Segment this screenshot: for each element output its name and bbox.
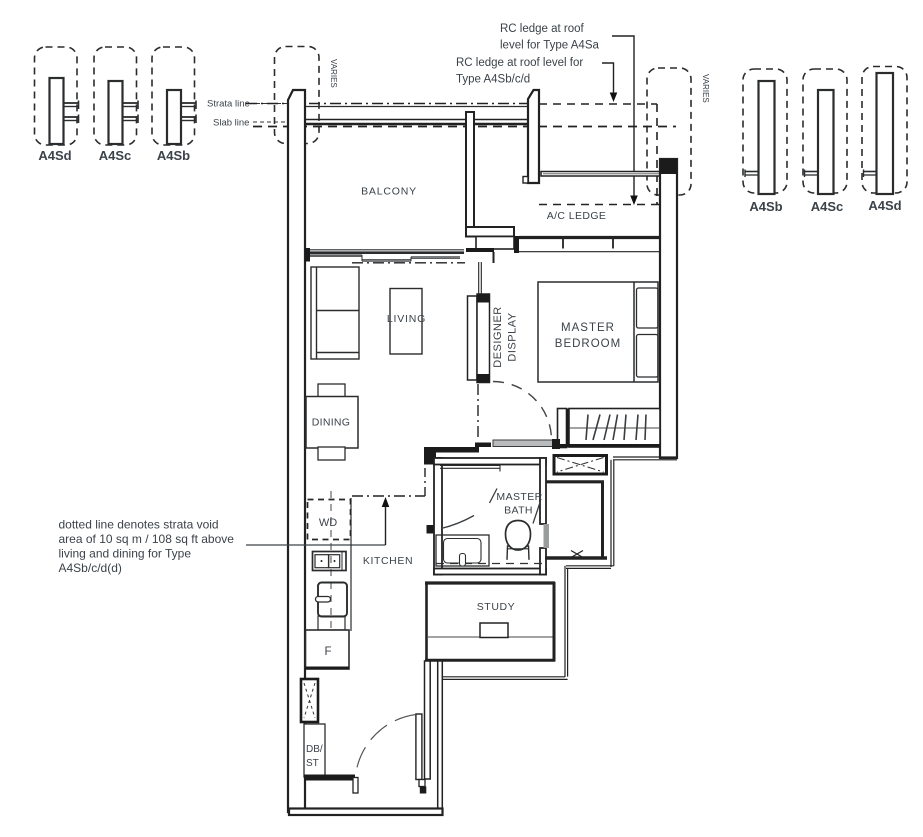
svg-text:living and dining for Type: living and dining for Type xyxy=(59,547,192,561)
svg-text:A4Sc: A4Sc xyxy=(99,148,132,163)
svg-text:A4Sc: A4Sc xyxy=(811,199,844,214)
svg-text:area of 10 sq m / 108 sq ft ab: area of 10 sq m / 108 sq ft above xyxy=(59,532,235,546)
svg-text:A4Sb/c/d(d): A4Sb/c/d(d) xyxy=(59,561,122,575)
svg-text:VARIES: VARIES xyxy=(701,74,710,103)
svg-text:BATH: BATH xyxy=(504,505,533,517)
svg-text:A4Sb: A4Sb xyxy=(749,199,782,214)
svg-text:DESIGNER: DESIGNER xyxy=(492,306,504,367)
svg-text:MASTER: MASTER xyxy=(561,322,615,334)
svg-text:BEDROOM: BEDROOM xyxy=(555,338,621,350)
svg-text:A4Sd: A4Sd xyxy=(868,198,901,213)
svg-text:A4Sd: A4Sd xyxy=(38,148,71,163)
svg-text:Type A4Sb/c/d: Type A4Sb/c/d xyxy=(456,74,530,86)
svg-text:level for Type A4Sa: level for Type A4Sa xyxy=(500,40,599,52)
svg-text:LIVING: LIVING xyxy=(387,313,426,325)
svg-text:Strata line: Strata line xyxy=(207,99,250,110)
svg-text:A/C LEDGE: A/C LEDGE xyxy=(547,210,607,222)
svg-text:BALCONY: BALCONY xyxy=(361,186,417,198)
svg-text:A4Sb: A4Sb xyxy=(157,148,190,163)
svg-text:Slab line: Slab line xyxy=(213,118,249,129)
svg-text:F: F xyxy=(324,646,331,658)
svg-text:DB/: DB/ xyxy=(306,744,323,755)
svg-text:RC ledge at roof level for: RC ledge at roof level for xyxy=(456,57,583,69)
svg-text:DISPLAY: DISPLAY xyxy=(507,312,519,361)
svg-text:WD: WD xyxy=(319,517,337,529)
svg-text:KITCHEN: KITCHEN xyxy=(363,555,413,567)
svg-text:STUDY: STUDY xyxy=(477,601,516,613)
svg-text:ST: ST xyxy=(306,758,319,769)
svg-text:RC ledge at roof: RC ledge at roof xyxy=(500,23,585,35)
svg-text:VARIES: VARIES xyxy=(329,59,338,88)
svg-text:MASTER: MASTER xyxy=(496,491,542,503)
svg-text:DINING: DINING xyxy=(312,417,351,429)
svg-text:dotted line denotes strata voi: dotted line denotes strata void xyxy=(59,518,219,532)
